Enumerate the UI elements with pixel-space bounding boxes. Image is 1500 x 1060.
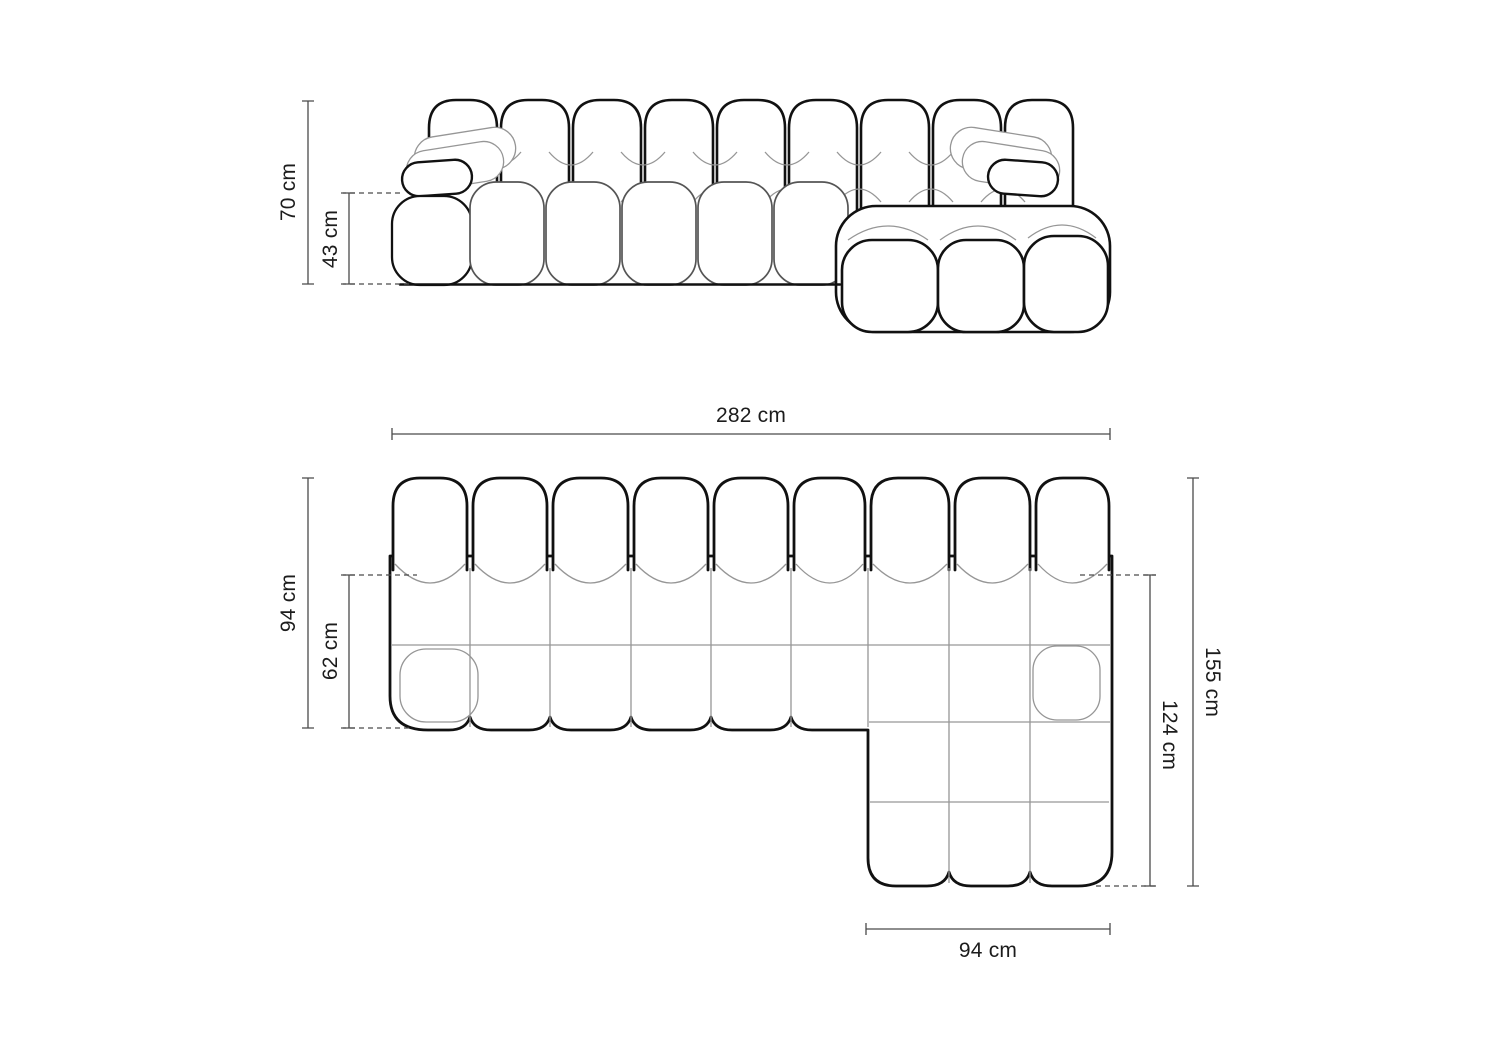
front-view-drawing [392,100,1110,332]
front-chaise [836,206,1110,332]
plan-outline [390,556,1112,886]
dim-line-total-length [1187,478,1199,886]
label-total-length: 155 cm [1200,647,1224,717]
plan-view-drawing [390,478,1112,886]
sofa-dimension-diagram: 70 cm 43 cm 282 cm 94 cm 62 cm 155 cm 12… [0,0,1500,1060]
dim-line-depth [302,478,314,728]
label-chaise-width: 94 cm [959,939,1017,963]
plan-back-bumps [393,478,1109,570]
label-arm-height: 43 cm [319,210,343,268]
dim-line-total-width [392,428,1110,440]
label-total-width: 282 cm [716,404,786,428]
label-total-height: 70 cm [277,163,301,221]
label-depth: 94 cm [277,574,301,632]
label-chaise-length: 124 cm [1157,700,1181,770]
diagram-drawing [0,0,1500,1060]
dim-line-chaise-length [1144,575,1156,886]
dim-line-seat-depth [343,575,355,728]
dim-line-total-height [302,101,314,284]
dim-line-arm-height [343,193,355,284]
label-seat-depth: 62 cm [319,622,343,680]
dim-line-chaise-width [866,923,1110,935]
